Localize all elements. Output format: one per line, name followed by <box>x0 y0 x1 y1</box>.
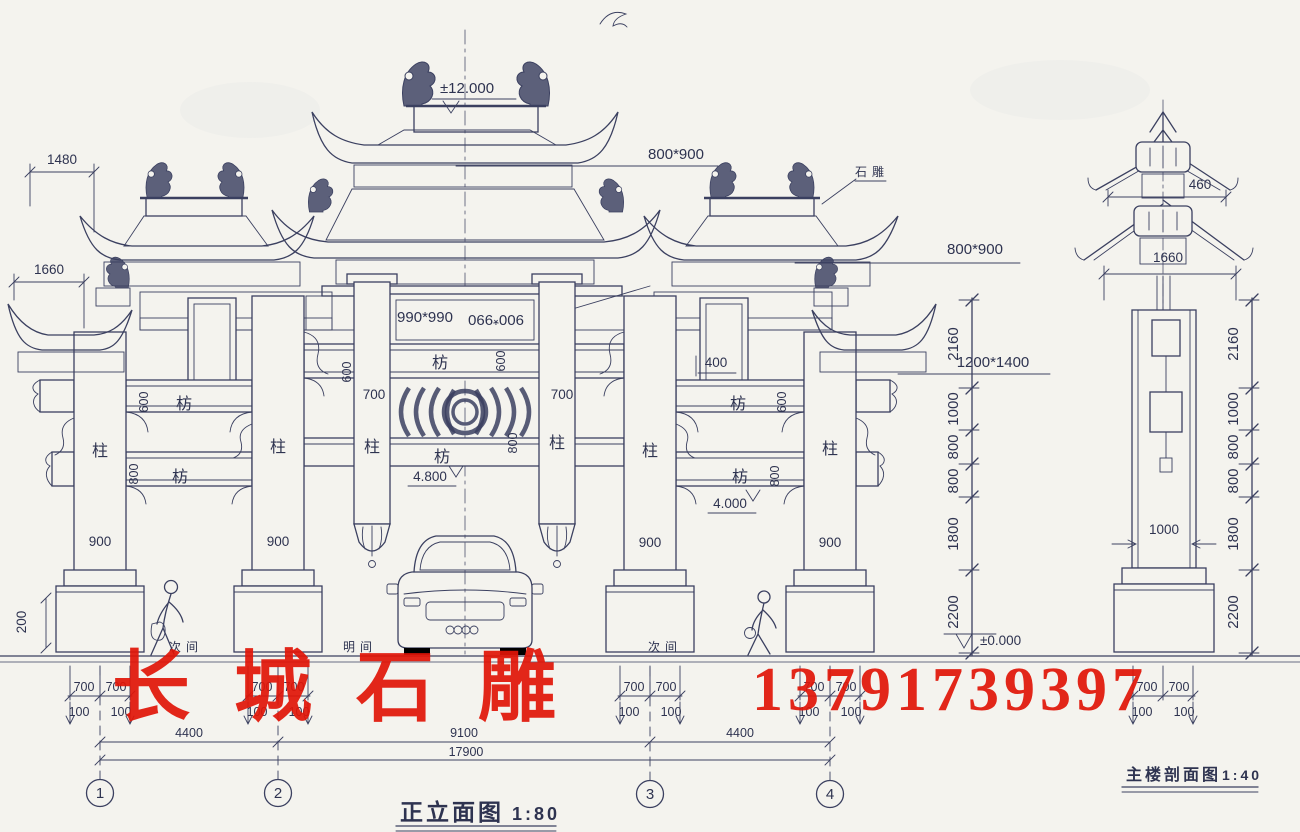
svg-text:800: 800 <box>127 464 141 485</box>
svg-text:柱: 柱 <box>364 438 380 456</box>
roof-main-lower <box>272 179 660 296</box>
dim-1660-left: 1660 <box>9 262 89 328</box>
axis-2: 2 <box>274 785 282 802</box>
dim-1480: 1480 <box>25 152 99 232</box>
svg-text:枋: 枋 <box>434 448 450 466</box>
car-mirror-left <box>387 584 398 594</box>
svg-text:900: 900 <box>819 535 842 550</box>
scanned-drawing-page: 2160 1000 800 800 1800 2200 700 700 100 … <box>0 0 1300 832</box>
watermark-phone: 13791739397 <box>752 656 1148 724</box>
svg-text:柱: 柱 <box>549 434 565 452</box>
height-chain-section <box>1225 294 1259 659</box>
bag-icon <box>745 628 756 639</box>
span-total-17900: 17900 <box>449 745 484 759</box>
panel-400-label: 400 <box>705 355 728 370</box>
plaque-size-b: 900*990 <box>468 311 524 328</box>
axis-3: 3 <box>646 786 654 803</box>
svg-text:800: 800 <box>506 433 520 454</box>
dim-460-label: 460 <box>1189 177 1212 192</box>
svg-text:枋: 枋 <box>172 468 188 486</box>
svg-text:1660: 1660 <box>34 262 64 277</box>
pen-mark <box>600 12 627 27</box>
section-scale: 1:40 <box>1222 767 1262 783</box>
section-dim-460: 460 <box>1103 177 1231 206</box>
svg-text:1200*1400: 1200*1400 <box>957 354 1030 371</box>
svg-text:枋: 枋 <box>432 354 448 372</box>
axis-1: 1 <box>96 785 104 802</box>
paifang-drawing: 2160 1000 800 800 1800 2200 700 700 100 … <box>0 0 1300 832</box>
plaque-size-a: 990*990 <box>397 309 453 326</box>
svg-text:600: 600 <box>494 351 508 372</box>
svg-text:次间: 次间 <box>648 640 682 654</box>
svg-text:1480: 1480 <box>47 152 77 167</box>
car-logo-rings <box>446 626 478 634</box>
watermark-brand: 长城石雕 <box>112 644 600 731</box>
svg-text:枋: 枋 <box>730 395 746 413</box>
car-mirror-right <box>532 584 543 594</box>
section-column: 1000 <box>1112 276 1216 652</box>
ornament-note: 石雕 <box>822 164 889 204</box>
clear-side-label: 4.000 <box>713 496 747 511</box>
svg-text:柱: 柱 <box>92 442 108 460</box>
svg-text:900: 900 <box>639 535 662 550</box>
front-elevation-title: 正立面图 <box>400 799 504 825</box>
svg-text:枋: 枋 <box>176 395 192 413</box>
svg-text:900: 900 <box>89 534 112 549</box>
section-view: 460 1660 1000 <box>1075 100 1253 652</box>
clear-center-label: 4.800 <box>413 469 447 484</box>
top-level-mark: ±12.000 <box>432 80 516 113</box>
level-top-label: ±12.000 <box>440 80 494 97</box>
svg-text:800: 800 <box>768 466 782 487</box>
svg-text:枋: 枋 <box>732 468 748 486</box>
svg-text:200: 200 <box>14 611 29 634</box>
section-title: 主楼剖面图 <box>1126 765 1221 784</box>
svg-text:柱: 柱 <box>270 438 286 456</box>
beam-700-left: 700 <box>363 387 386 402</box>
pedestrian-right <box>745 591 777 655</box>
svg-text:600: 600 <box>775 392 789 413</box>
svg-text:柱: 柱 <box>642 442 658 460</box>
plinth-200-dim: 200 <box>14 593 51 653</box>
svg-text:800*900: 800*900 <box>947 241 1003 258</box>
svg-text:900: 900 <box>267 534 290 549</box>
svg-text:柱: 柱 <box>822 440 838 458</box>
span-4400-right: 4400 <box>726 726 754 740</box>
svg-text:石雕: 石雕 <box>855 164 889 179</box>
axis-4: 4 <box>826 786 834 803</box>
ground-level-mark: ±0.000 <box>944 633 1021 648</box>
front-elevation-scale: 1:80 <box>512 804 560 824</box>
svg-text:600: 600 <box>340 362 354 383</box>
section-col-width-label: 1000 <box>1149 522 1179 537</box>
svg-text:800*900: 800*900 <box>648 146 704 163</box>
level-ground-label: ±0.000 <box>980 633 1021 648</box>
main-plaque-size: 1200*1400 <box>898 354 1050 374</box>
section-roof-upper <box>1088 142 1238 198</box>
beam-700-right: 700 <box>551 387 574 402</box>
svg-text:600: 600 <box>137 392 151 413</box>
height-chain-main <box>945 294 979 659</box>
dim-1660-label: 1660 <box>1153 250 1183 265</box>
scan-artifacts <box>180 12 1150 138</box>
